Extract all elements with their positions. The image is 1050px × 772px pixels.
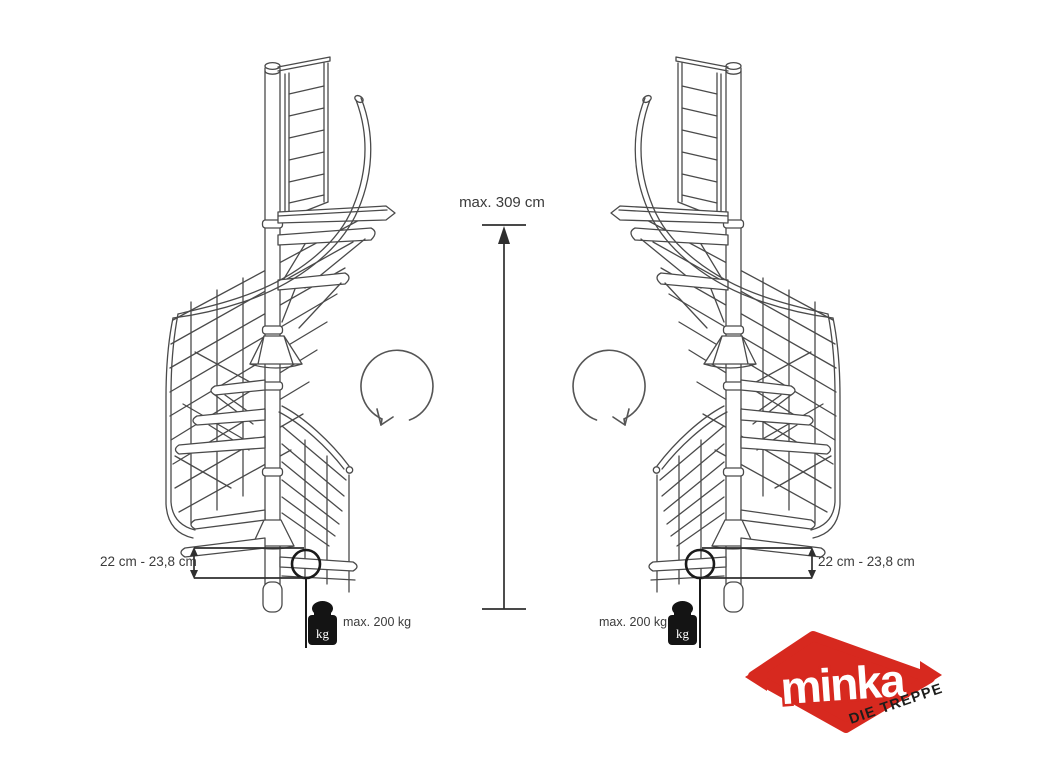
step-height-bracket-left (186, 540, 316, 586)
step-height-bracket-right (690, 540, 820, 586)
weight-unit-text-left: kg (316, 626, 330, 641)
load-label-right: max. 200 kg (599, 615, 667, 629)
height-dimension-arrow (476, 216, 532, 616)
weight-icon-right: kg (666, 600, 700, 647)
step-height-label-left: 22 cm - 23,8 cm (100, 554, 197, 569)
weight-icon-left: kg (306, 600, 340, 647)
rotation-arrow-counterclockwise-icon (357, 348, 437, 432)
weight-unit-text-right: kg (676, 626, 690, 641)
diagram-canvas: max. 309 cm 22 cm - 23,8 cm 22 cm - 23,8… (0, 0, 1050, 772)
height-dimension-label: max. 309 cm (446, 194, 558, 211)
rotation-arrow-clockwise-icon (569, 348, 649, 432)
step-height-label-right: 22 cm - 23,8 cm (818, 554, 915, 569)
minka-logo: minka DIE TREPPE (745, 630, 945, 772)
load-label-left: max. 200 kg (343, 615, 411, 629)
